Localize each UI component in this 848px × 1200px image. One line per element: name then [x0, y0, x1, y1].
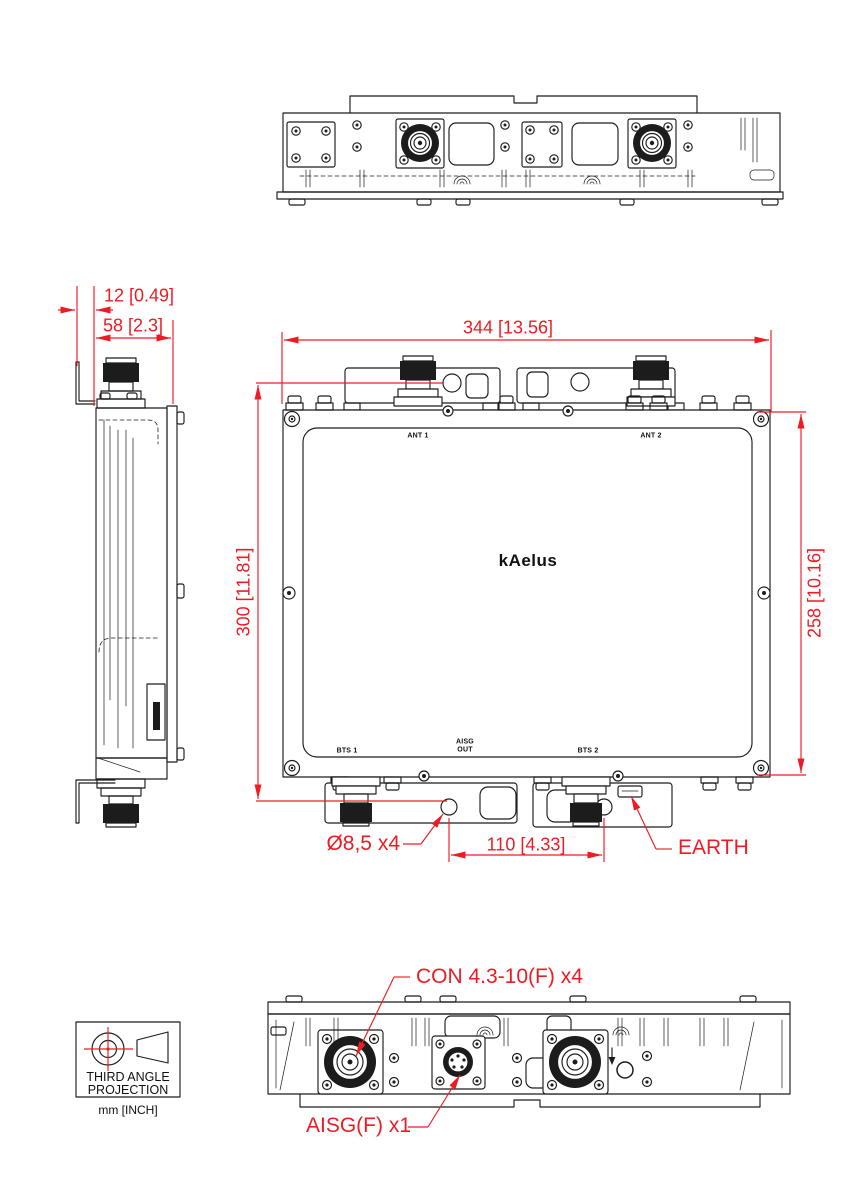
dim-hole-spacing-label: 110 [4.33] [487, 835, 566, 856]
callout-earth: EARTH [678, 836, 749, 860]
top-center-plate [522, 122, 562, 167]
projection-note-line1: THIRD ANGLE [86, 1070, 169, 1084]
dim-bracket-offset-label: 12 [0.49] [104, 286, 174, 307]
side-ridges [99, 420, 158, 748]
side-bracket-top [76, 362, 95, 404]
top-texture [300, 170, 695, 187]
bottom-view [268, 996, 790, 1107]
dim-body-height-label: 258 [10.16] [805, 548, 826, 638]
top-view [277, 96, 783, 205]
front-ant2-connector [627, 356, 675, 406]
projection-note-line2: PROJECTION [88, 1083, 169, 1097]
port-label-aisg-out-line1: AISG [456, 739, 474, 746]
front-face-plate [283, 410, 770, 777]
top-ant2-connector [628, 119, 676, 168]
port-label-ant2: ANT 2 [640, 432, 661, 440]
port-label-bts2: BTS 2 [578, 747, 599, 755]
top-mounting-hole [443, 374, 461, 392]
port-label-bts1: BTS 1 [337, 747, 358, 755]
earth-terminal [618, 786, 642, 797]
drawing-lineart [0, 0, 848, 1200]
leader-earth [631, 796, 672, 849]
leader-mounting-hole [403, 814, 443, 844]
callout-aisg-connector: AISG(F) x1 [306, 1114, 411, 1138]
dim-body-depth-label: 58 [2.3] [103, 316, 163, 337]
side-label-plate [147, 684, 165, 740]
top-right-end-detail [741, 118, 774, 180]
brand-logo: kAelus [499, 551, 558, 571]
port-label-ant1: ANT 1 [407, 432, 428, 440]
bottom-bts2-connector [543, 1030, 608, 1094]
dim-overall-width [282, 330, 771, 412]
earth-symbol [609, 1048, 634, 1078]
bottom-aisg-connector [432, 1036, 485, 1089]
cone-icon [137, 1032, 168, 1063]
dim-overall-width-label: 344 [13.56] [463, 318, 553, 339]
port-label-aisg-out-line2: OUT [457, 746, 472, 753]
side-bottom-connector [97, 779, 145, 827]
front-bottom-brackets [325, 783, 672, 827]
units-note: mm [INCH] [98, 1103, 157, 1117]
side-top-connector [97, 358, 145, 408]
top-left-plate [287, 122, 335, 167]
port-label-aisg-out: AISGOUT [456, 739, 474, 754]
dim-mounting-height-label: 300 [11.81] [234, 548, 255, 637]
drawing-canvas: 344 [13.56] 300 [11.81] 258 [10.16] 12 [… [0, 0, 848, 1200]
side-view [76, 358, 184, 827]
callout-rf-connectors: CON 4.3-10(F) x4 [416, 965, 583, 989]
bottom-bts1-connector [318, 1030, 383, 1094]
top-ant1-connector [396, 119, 444, 168]
front-ant1-connector [394, 356, 442, 406]
front-view [283, 356, 770, 827]
callout-mounting-hole: Ø8,5 x4 [326, 832, 400, 856]
bottom-view-tabs [286, 996, 756, 1002]
top-view-feet [289, 199, 778, 205]
